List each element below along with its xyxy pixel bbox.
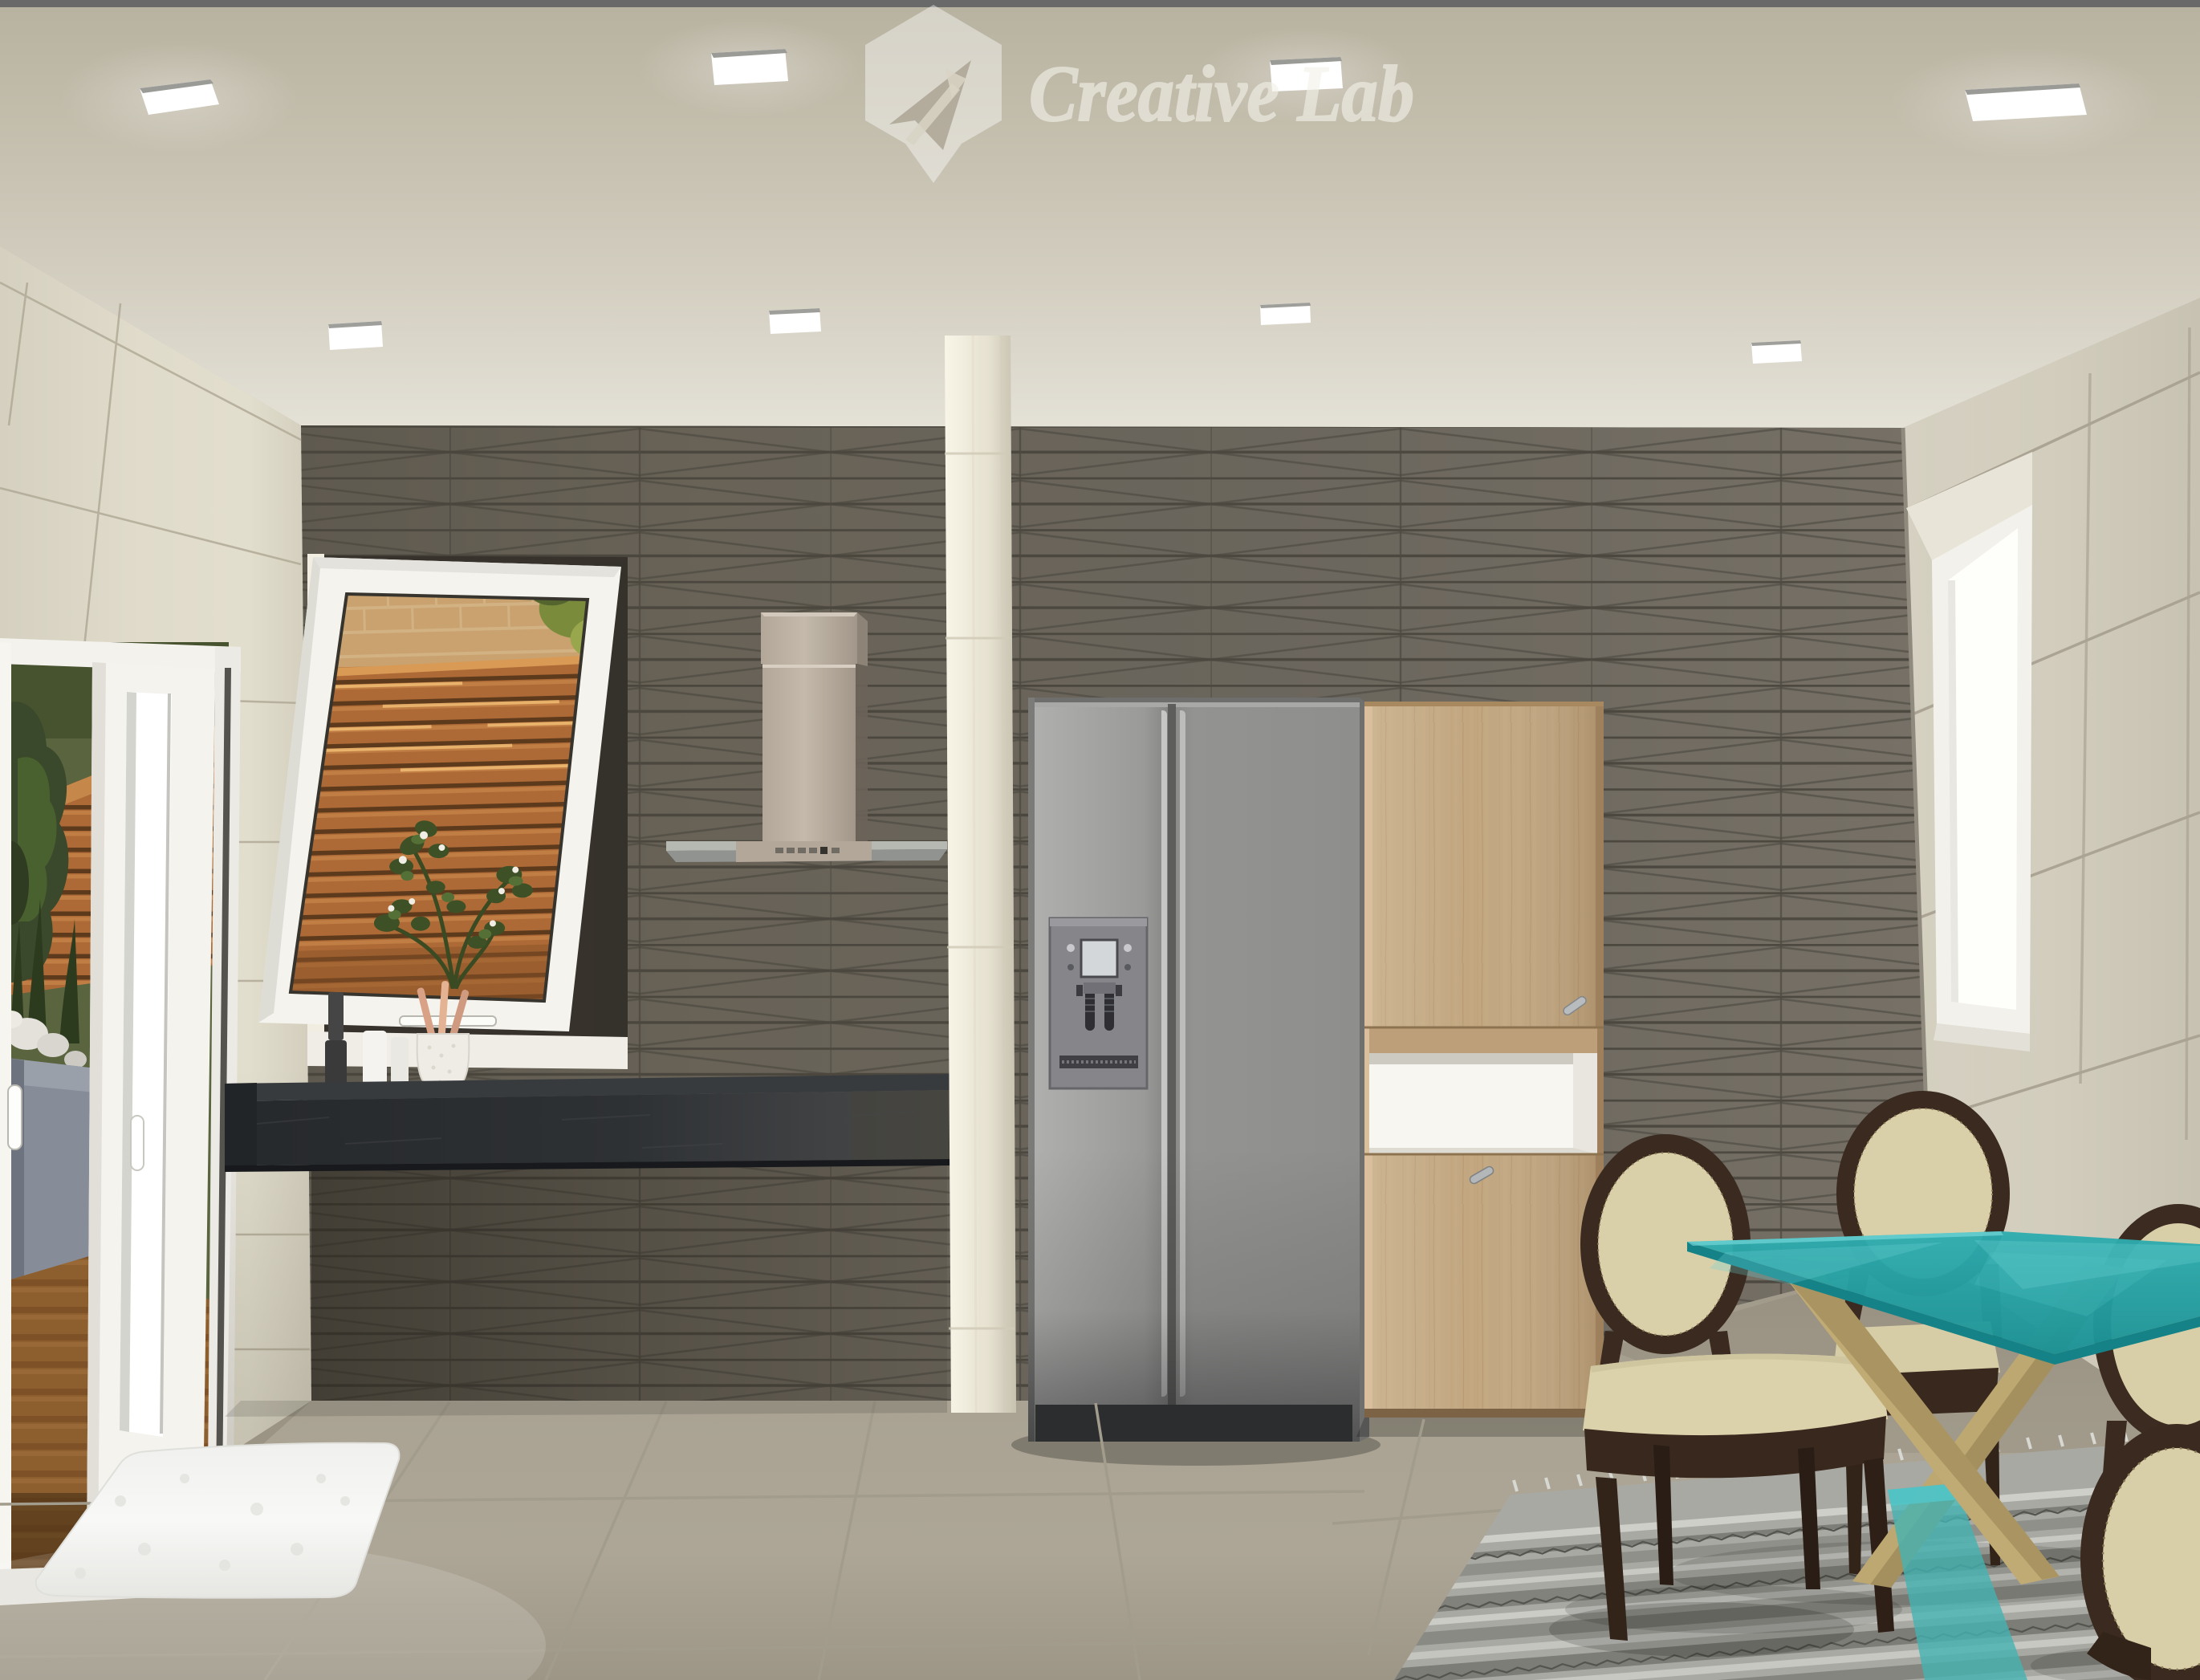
svg-text:Creative Lab: Creative Lab [1029,49,1414,138]
